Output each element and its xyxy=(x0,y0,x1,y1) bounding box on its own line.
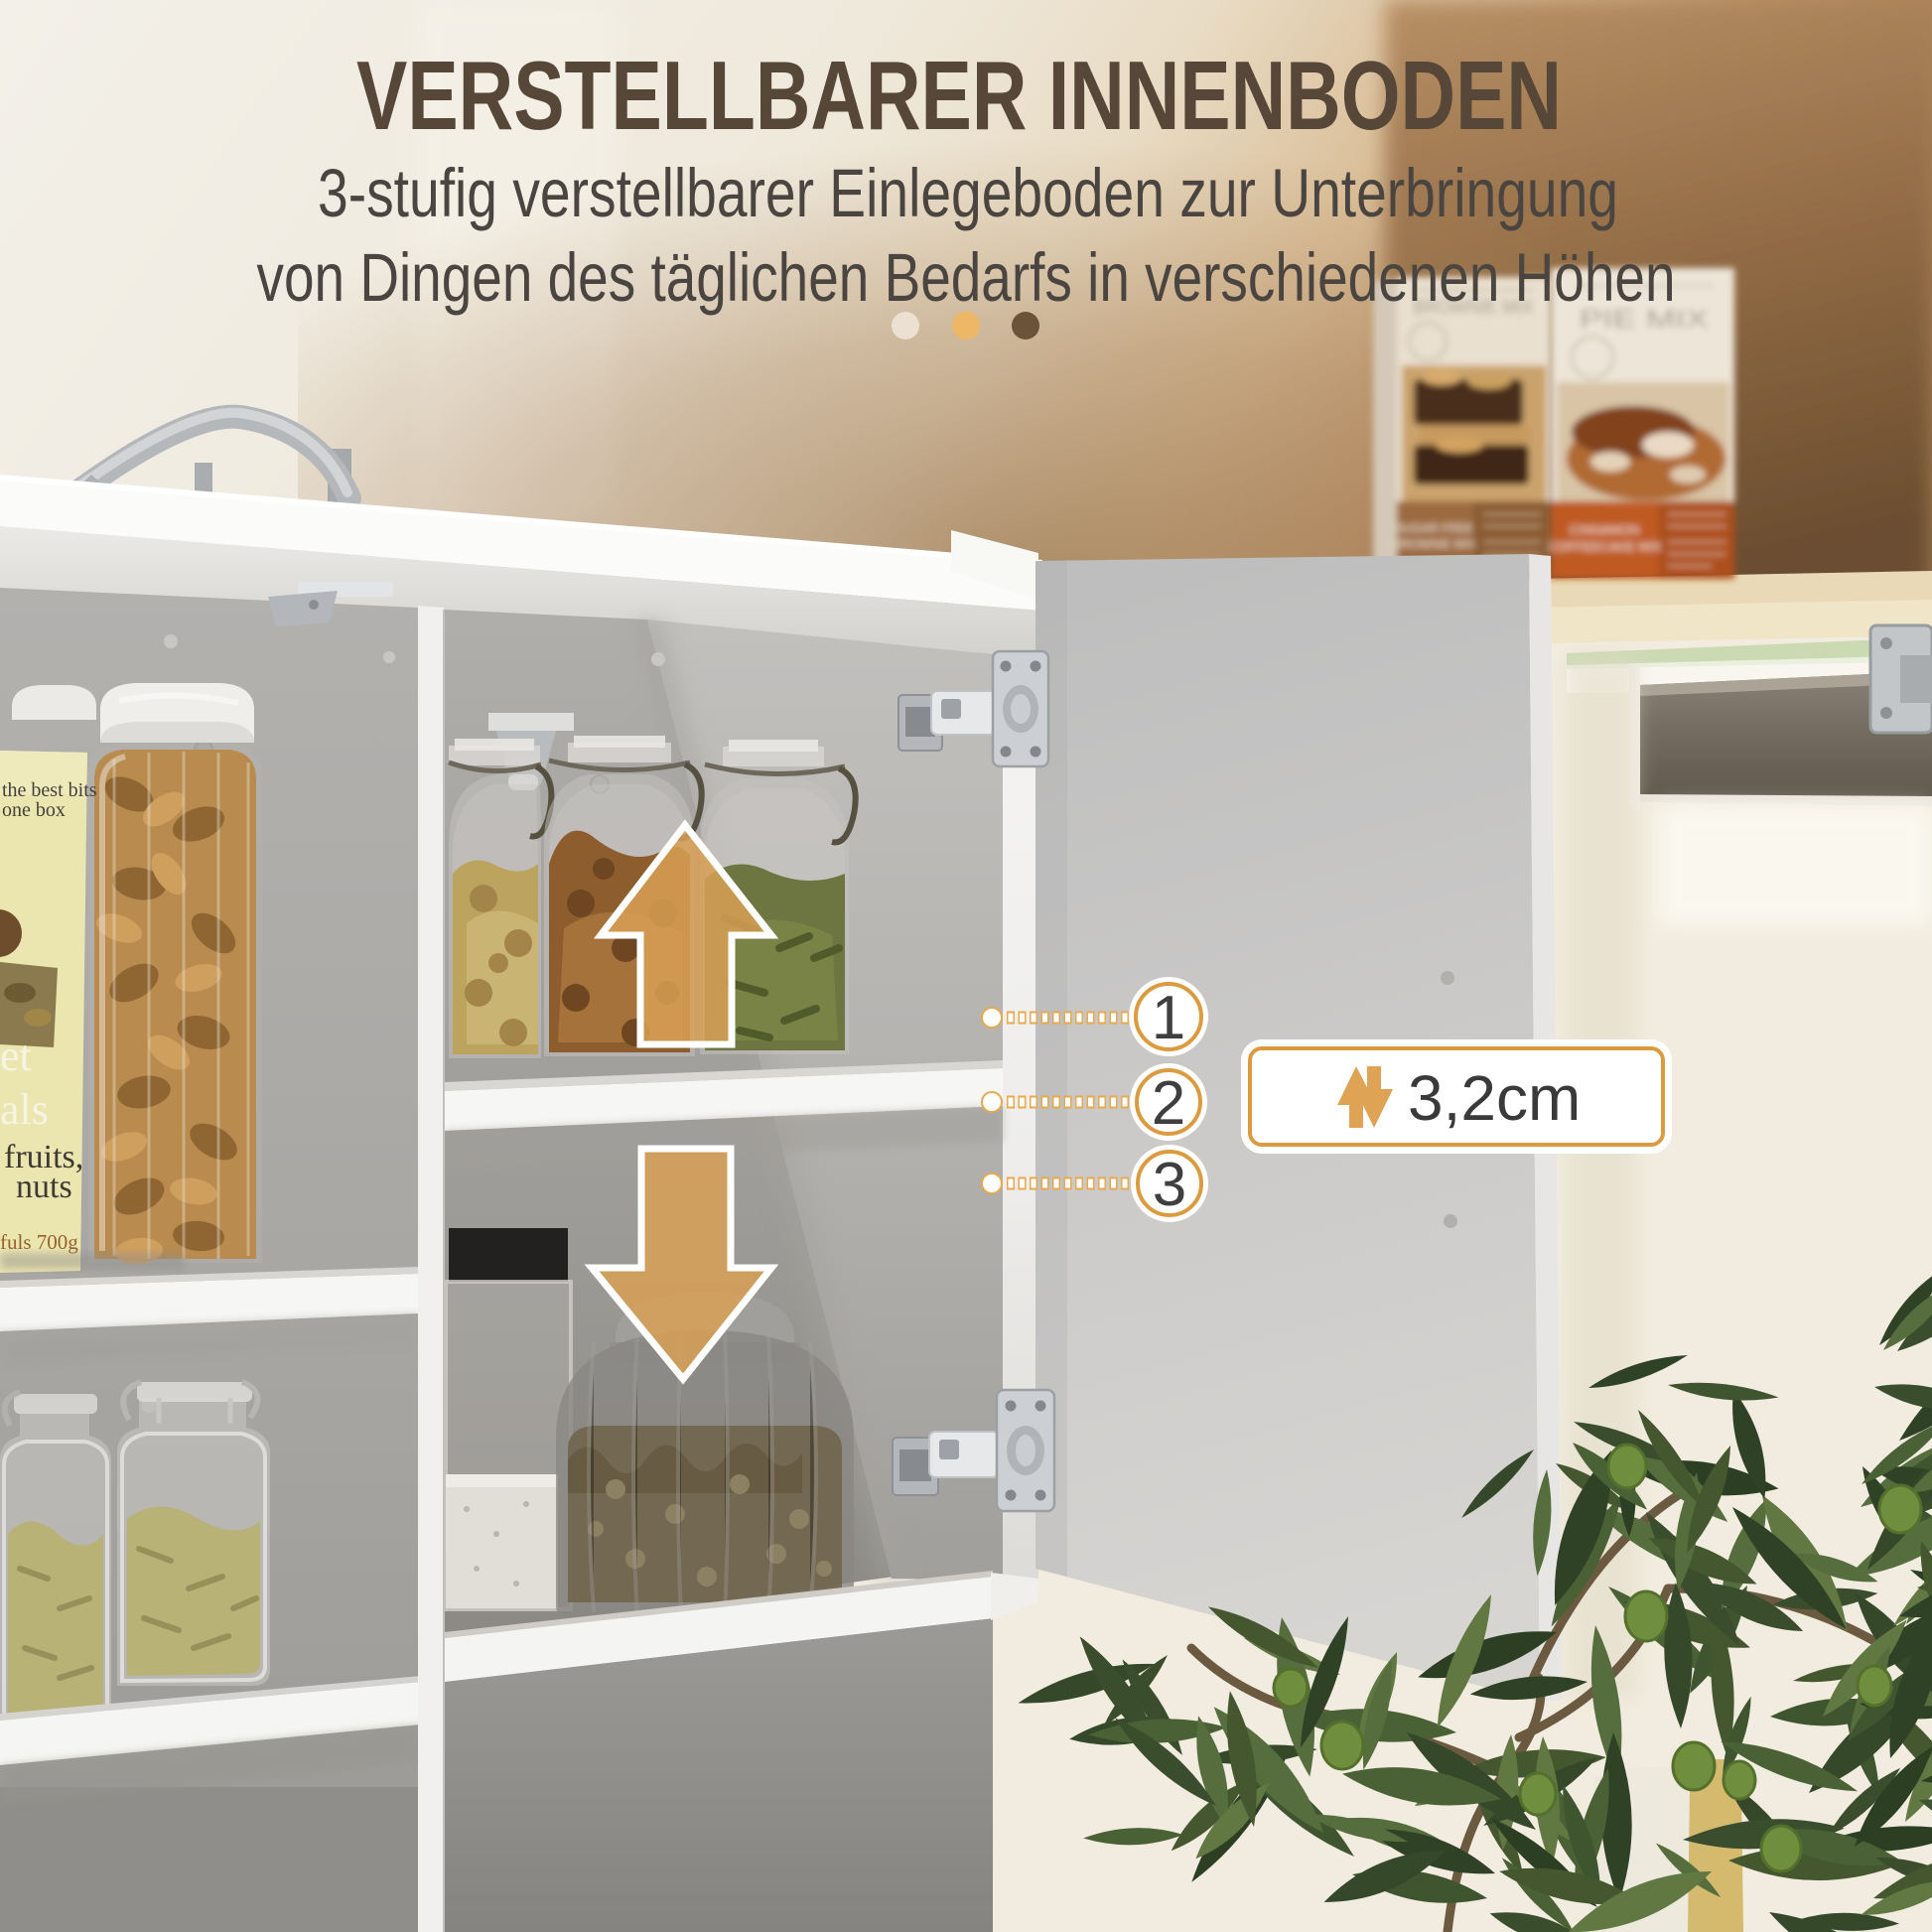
svg-text:COFFEECAKE MIX: COFFEECAKE MIX xyxy=(1548,539,1662,554)
svg-text:the best bits: the best bits xyxy=(2,779,97,801)
svg-text:von Dingen des täglichen Bedar: von Dingen des täglichen Bedarfs in vers… xyxy=(257,239,1676,316)
svg-text:VERSTELLBARER INNENBODEN: VERSTELLBARER INNENBODEN xyxy=(356,41,1562,150)
svg-text:1: 1 xyxy=(1152,984,1185,1052)
svg-text:3,2cm: 3,2cm xyxy=(1408,1062,1581,1134)
svg-text:SUGAR FREE: SUGAR FREE xyxy=(1396,521,1473,535)
svg-text:als: als xyxy=(0,1085,49,1134)
svg-text:BROWNIE MIX: BROWNIE MIX xyxy=(1394,537,1475,551)
svg-text:2: 2 xyxy=(1152,1069,1185,1138)
svg-text:fuls 700g: fuls 700g xyxy=(0,1230,78,1254)
svg-text:et: et xyxy=(0,1032,32,1080)
svg-text:CINNAMON: CINNAMON xyxy=(1570,522,1640,537)
svg-text:3-stufig verstellbarer Einlege: 3-stufig verstellbarer Einlegeboden zur … xyxy=(318,155,1618,231)
svg-text:3: 3 xyxy=(1153,1151,1186,1219)
svg-text:nuts: nuts xyxy=(16,1169,72,1205)
svg-text:one box: one box xyxy=(2,799,66,821)
